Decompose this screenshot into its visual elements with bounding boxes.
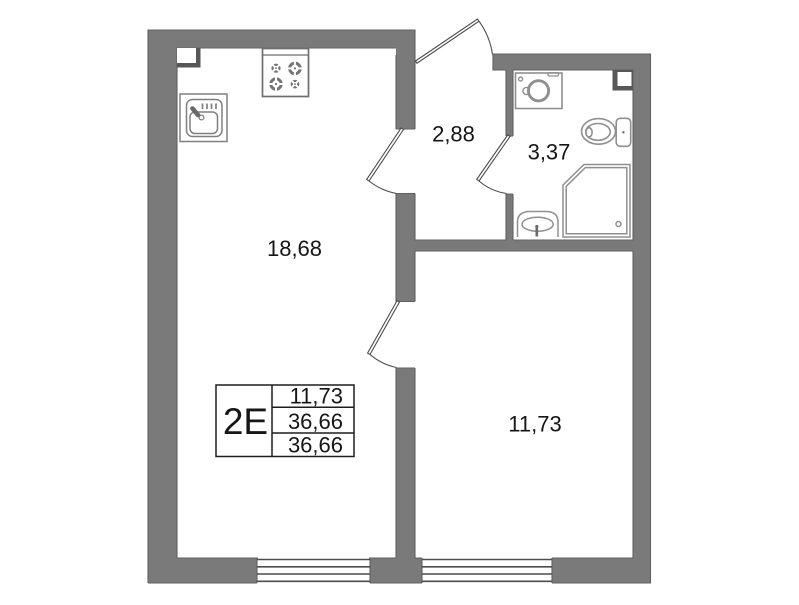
- svg-text:11,73: 11,73: [290, 384, 343, 409]
- svg-text:2,88: 2,88: [432, 122, 475, 147]
- svg-text:3,37: 3,37: [528, 140, 571, 165]
- svg-text:36,66: 36,66: [288, 409, 343, 434]
- svg-text:36,66: 36,66: [288, 433, 343, 458]
- svg-text:2E: 2E: [223, 401, 268, 442]
- svg-text:11,73: 11,73: [508, 412, 561, 437]
- svg-text:18,68: 18,68: [267, 236, 322, 261]
